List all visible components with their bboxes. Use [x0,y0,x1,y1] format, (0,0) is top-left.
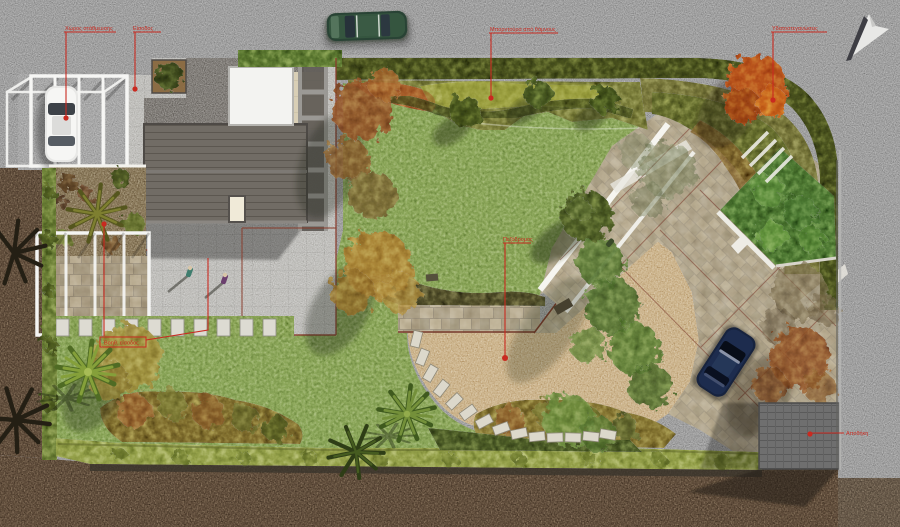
svg-text:Μπορντούρα από θάμνους: Μπορντούρα από θάμνους [490,26,556,33]
svg-text:Πεζόδρομος: Πεζόδρομος [503,236,533,243]
svg-text:Υδατοστεγανώσεις: Υδατοστεγανώσεις [772,25,818,32]
svg-text:Είσοδος: Είσοδος [133,26,153,32]
svg-text:Βοηθ. είσοδος: Βοηθ. είσοδος [104,341,139,347]
svg-text:Αποθήκη: Αποθήκη [846,430,868,437]
svg-text:Χώρος στάθμευσης: Χώρος στάθμευσης [65,25,113,32]
